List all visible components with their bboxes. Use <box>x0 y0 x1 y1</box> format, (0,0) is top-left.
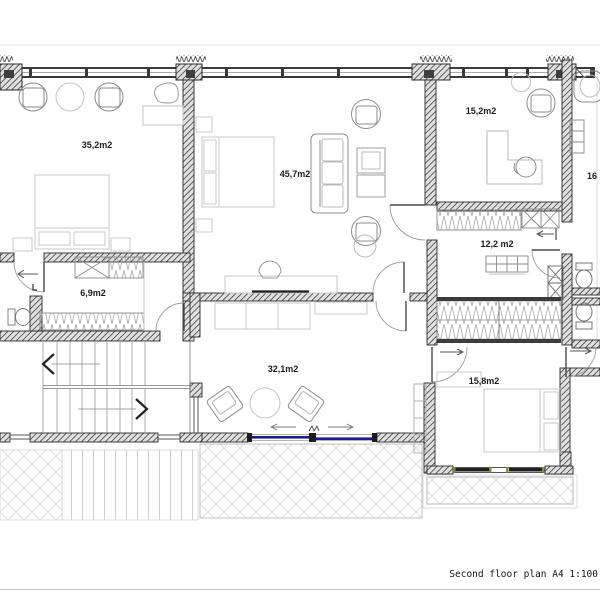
l-desk <box>487 131 542 184</box>
room-label-16: 16 <box>587 171 597 181</box>
sheet-title: Second floor plan A4 1:100 <box>449 569 598 580</box>
staircase <box>43 341 190 433</box>
bedroom2-windows <box>453 467 545 473</box>
stair-treads-down <box>57 389 145 433</box>
room-label-35-2: 35,2m2 <box>82 140 113 150</box>
sliding-door <box>247 424 377 442</box>
toilet <box>576 263 592 288</box>
furniture-office <box>487 73 555 185</box>
stair-treads-up <box>57 342 145 385</box>
room-label-6-9: 6,9m2 <box>80 288 106 298</box>
furniture-lounge <box>206 302 426 453</box>
floor-plan-sheet: 35,2m2 45,7m2 15,2m2 16 12,2 m2 6,9m2 32… <box>0 0 600 600</box>
furniture-master-bedroom <box>13 83 183 251</box>
room-labels: 35,2m2 45,7m2 15,2m2 16 12,2 m2 6,9m2 32… <box>80 106 597 386</box>
sofa <box>215 303 310 329</box>
room-label-32-1: 32,1m2 <box>268 364 299 374</box>
room-label-45-7: 45,7m2 <box>280 169 311 179</box>
room-label-15-2: 15,2m2 <box>466 106 497 116</box>
bidet <box>576 303 592 329</box>
window-band-top <box>0 64 595 90</box>
sofa <box>311 134 348 213</box>
furniture-walkin-closet <box>437 209 563 300</box>
room-label-12-2: 12,2 m2 <box>480 239 513 249</box>
furniture-suite-living <box>196 100 385 294</box>
bed <box>202 137 274 207</box>
room-label-15-8: 15,8m2 <box>469 376 500 386</box>
door-mark <box>33 284 37 290</box>
terrace-areas <box>0 444 577 520</box>
walls <box>0 60 600 474</box>
furniture-closet <box>8 257 144 331</box>
insulation-marks <box>0 55 574 62</box>
bed <box>35 175 109 249</box>
bed <box>484 389 561 452</box>
wardrobe-band <box>437 297 561 343</box>
floor-plan-drawing: 35,2m2 45,7m2 15,2m2 16 12,2 m2 6,9m2 32… <box>0 0 600 600</box>
